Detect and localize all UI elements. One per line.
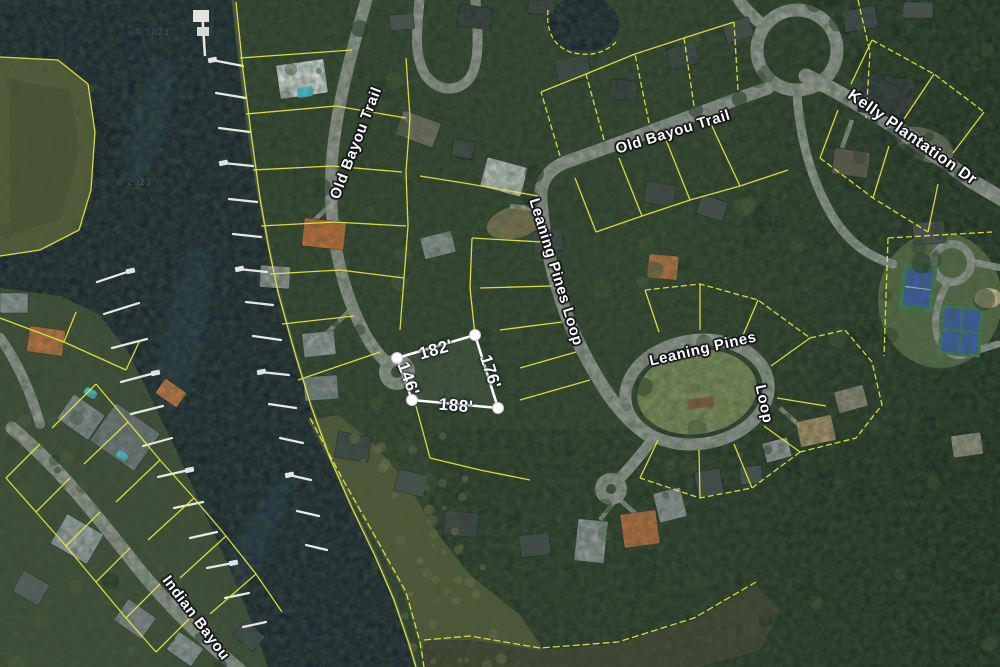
parcel-vertex-handle[interactable] [470,330,481,341]
imagery-watermark: © 2023 [134,27,169,37]
parcel-vertex-handle[interactable] [392,353,403,364]
imagery-watermark: © 2023 [116,177,151,187]
parcel-vertex-handle[interactable] [493,403,504,414]
dimension-label-bottom: 188' [438,395,474,418]
map-canvas[interactable]: Old Bayou Trail Old Bayou Trail Kelly Pl… [0,0,1000,667]
